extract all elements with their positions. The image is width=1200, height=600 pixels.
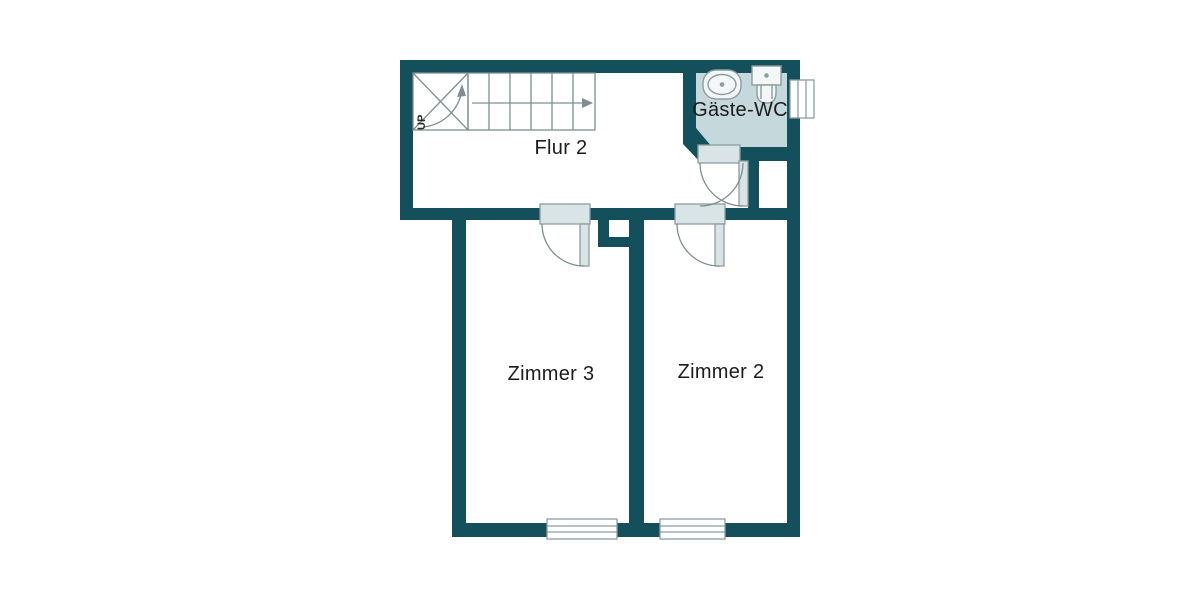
room3-left-wall: [452, 208, 466, 537]
room2-door-swing-arc: [677, 224, 719, 266]
room3-door-leaf: [580, 224, 589, 266]
bottom-wall-left: [452, 523, 547, 537]
room2-window: [660, 519, 725, 539]
wc-door-swing-arc-2: [700, 163, 743, 206]
wc-door-leaf: [739, 161, 748, 206]
chimney-bottom-wall: [598, 237, 644, 247]
stairs: [413, 73, 595, 130]
stairs-up-label: UP: [416, 115, 428, 130]
stair-walk-arrowhead-icon: [582, 98, 593, 108]
sink-drain-icon: [720, 83, 723, 86]
wc-niche-wall: [748, 161, 759, 220]
wc-bottom-wall: [740, 147, 787, 161]
room3-window: [547, 519, 617, 539]
room-divider-wall: [629, 220, 644, 523]
room2-door-threshold: [675, 204, 725, 224]
bottom-wall-right: [725, 523, 800, 537]
stair-winder-arrowhead-icon: [457, 84, 466, 97]
wc-label: Gäste-WC: [692, 99, 788, 121]
wc-window: [790, 80, 814, 118]
floor-plan-canvas: Flur 2 Gäste-WC Zimmer 3 Zimmer 2 UP: [0, 0, 1200, 600]
right-wall: [787, 60, 800, 537]
stair-winder-arc: [423, 89, 462, 127]
bottom-wall-mid: [617, 523, 660, 537]
room3-label: Zimmer 3: [508, 363, 595, 385]
toilet-tank-dot-icon: [765, 74, 768, 77]
hall-bottom-wall-mid: [588, 208, 677, 220]
wc-door-swing-arc: [700, 163, 743, 206]
room2-label: Zimmer 2: [678, 361, 765, 383]
room2-door-leaf: [715, 224, 724, 266]
room3-door-swing-arc: [542, 224, 584, 266]
top-wall: [400, 60, 800, 73]
room3-door-threshold: [540, 204, 590, 224]
hall-left-wall: [400, 60, 413, 220]
hall-label: Flur 2: [535, 137, 588, 159]
wc-door-threshold: [698, 145, 740, 163]
floor-plan: Flur 2 Gäste-WC Zimmer 3 Zimmer 2 UP: [0, 0, 1200, 600]
hall-bottom-wall-left: [400, 208, 542, 220]
